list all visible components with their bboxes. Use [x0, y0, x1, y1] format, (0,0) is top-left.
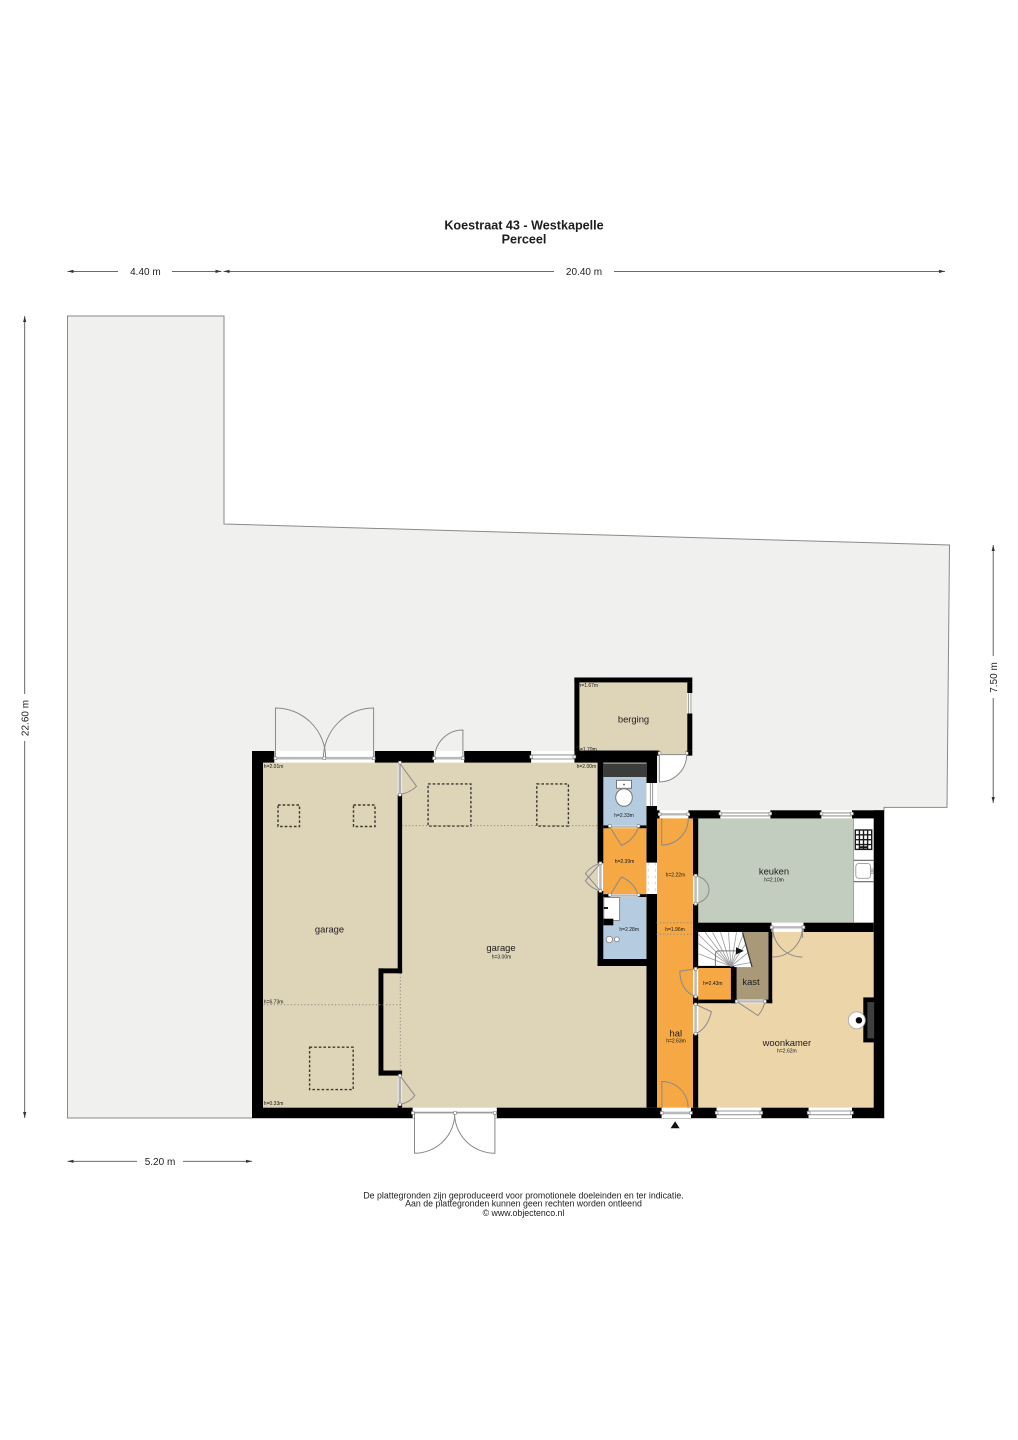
svg-text:h=3.00m: h=3.00m — [492, 955, 512, 961]
svg-text:h=2.63m: h=2.63m — [666, 1039, 686, 1045]
svg-text:berging: berging — [618, 713, 649, 724]
svg-text:Perceel: Perceel — [502, 233, 547, 247]
svg-text:h=2.39m: h=2.39m — [615, 859, 635, 865]
svg-text:h=2.33m: h=2.33m — [614, 813, 634, 819]
svg-text:5.20 m: 5.20 m — [145, 1157, 176, 1168]
svg-text:7.50 m: 7.50 m — [989, 662, 1000, 693]
svg-text:h=0.33m: h=0.33m — [264, 1101, 284, 1107]
svg-text:h=2.28m: h=2.28m — [619, 927, 639, 933]
svg-text:© www.objectenco.nl: © www.objectenco.nl — [483, 1208, 565, 1218]
svg-text:4.40 m: 4.40 m — [130, 267, 161, 278]
svg-text:h=6.73m: h=6.73m — [264, 1000, 284, 1006]
svg-text:keuken: keuken — [759, 866, 789, 877]
svg-text:h=1.96m: h=1.96m — [665, 927, 685, 933]
svg-text:h=1.67m: h=1.67m — [579, 683, 599, 689]
svg-text:Koestraat 43 - Westkapelle: Koestraat 43 - Westkapelle — [444, 219, 603, 233]
svg-text:h=2.62m: h=2.62m — [777, 1049, 797, 1055]
svg-text:garage: garage — [486, 942, 515, 953]
svg-text:20.40 m: 20.40 m — [566, 267, 602, 278]
svg-text:h=2.00m: h=2.00m — [577, 764, 597, 770]
svg-text:woonkamer: woonkamer — [762, 1037, 811, 1048]
svg-text:h=2.10m: h=2.10m — [764, 877, 784, 883]
svg-text:h=2.22m: h=2.22m — [666, 872, 686, 878]
svg-text:garage: garage — [315, 924, 344, 935]
svg-text:22.60 m: 22.60 m — [20, 700, 31, 736]
svg-text:h=1.79m: h=1.79m — [577, 747, 597, 753]
svg-text:h=2.01m: h=2.01m — [264, 764, 284, 770]
svg-text:h=2.43m: h=2.43m — [703, 981, 723, 987]
svg-text:hal: hal — [670, 1027, 683, 1038]
svg-text:kast: kast — [742, 976, 760, 987]
